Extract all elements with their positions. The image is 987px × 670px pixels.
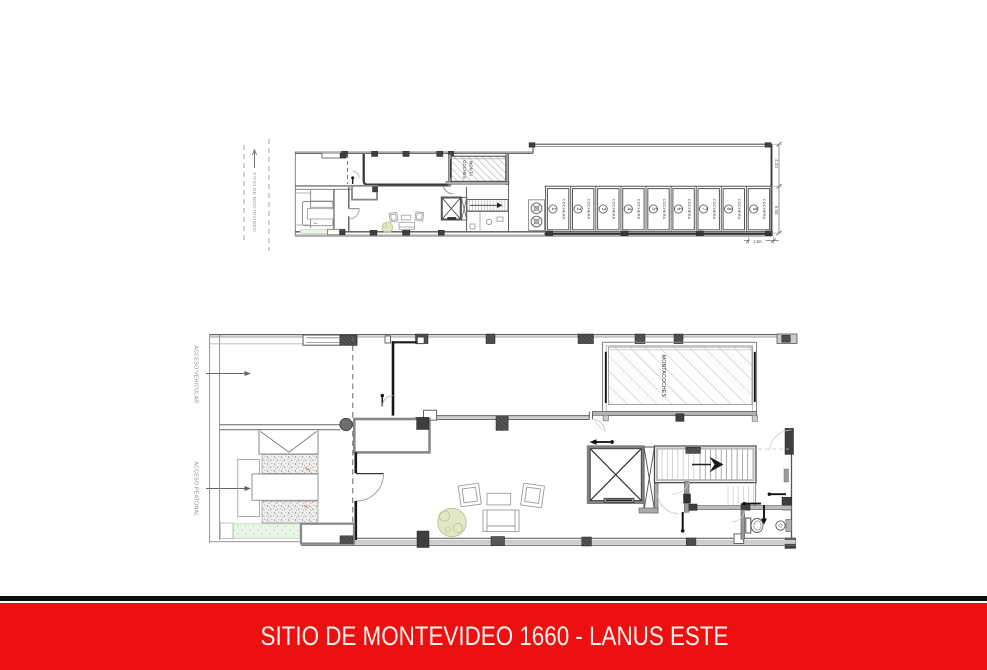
svg-text:8: 8 <box>726 208 732 211</box>
svg-text:COCHERA: COCHERA <box>637 199 642 220</box>
svg-text:9: 9 <box>751 208 757 211</box>
svg-text:MONTA: MONTA <box>469 161 474 176</box>
svg-text:COCHERA: COCHERA <box>586 199 591 220</box>
svg-text:ACCESO VEHICULAR: ACCESO VEHICULAR <box>193 346 199 404</box>
svg-text:1: 1 <box>550 208 556 211</box>
svg-text:COCHERA: COCHERA <box>687 199 692 220</box>
svg-text:3: 3 <box>600 208 606 211</box>
svg-text:SITIO DE MONTEVIDEO: SITIO DE MONTEVIDEO <box>251 172 257 232</box>
svg-text:4: 4 <box>625 208 631 211</box>
svg-text:2.50: 2.50 <box>753 239 762 244</box>
svg-text:4.33: 4.33 <box>774 159 779 168</box>
svg-text:2: 2 <box>575 208 581 211</box>
svg-text:MONTACOCHES: MONTACOCHES <box>660 355 666 398</box>
svg-text:SITIO DE MONTEVIDEO 1660 - LAN: SITIO DE MONTEVIDEO 1660 - LANUS ESTE <box>261 621 729 651</box>
svg-text:ACCESO PEATONAL: ACCESO PEATONAL <box>193 461 199 516</box>
svg-text:COCHERA: COCHERA <box>737 199 742 220</box>
svg-text:5: 5 <box>650 208 656 211</box>
svg-text:5.50: 5.50 <box>774 206 779 215</box>
svg-text:COCHERA: COCHERA <box>662 199 667 220</box>
svg-text:COCHERA: COCHERA <box>762 199 767 220</box>
svg-text:7: 7 <box>701 208 707 211</box>
svg-text:COCHERA: COCHERA <box>612 199 617 220</box>
svg-text:6: 6 <box>675 208 681 211</box>
svg-text:COCHES: COCHES <box>462 160 467 179</box>
svg-text:COCHERA: COCHERA <box>712 199 717 220</box>
svg-text:COCHERA: COCHERA <box>561 199 566 220</box>
